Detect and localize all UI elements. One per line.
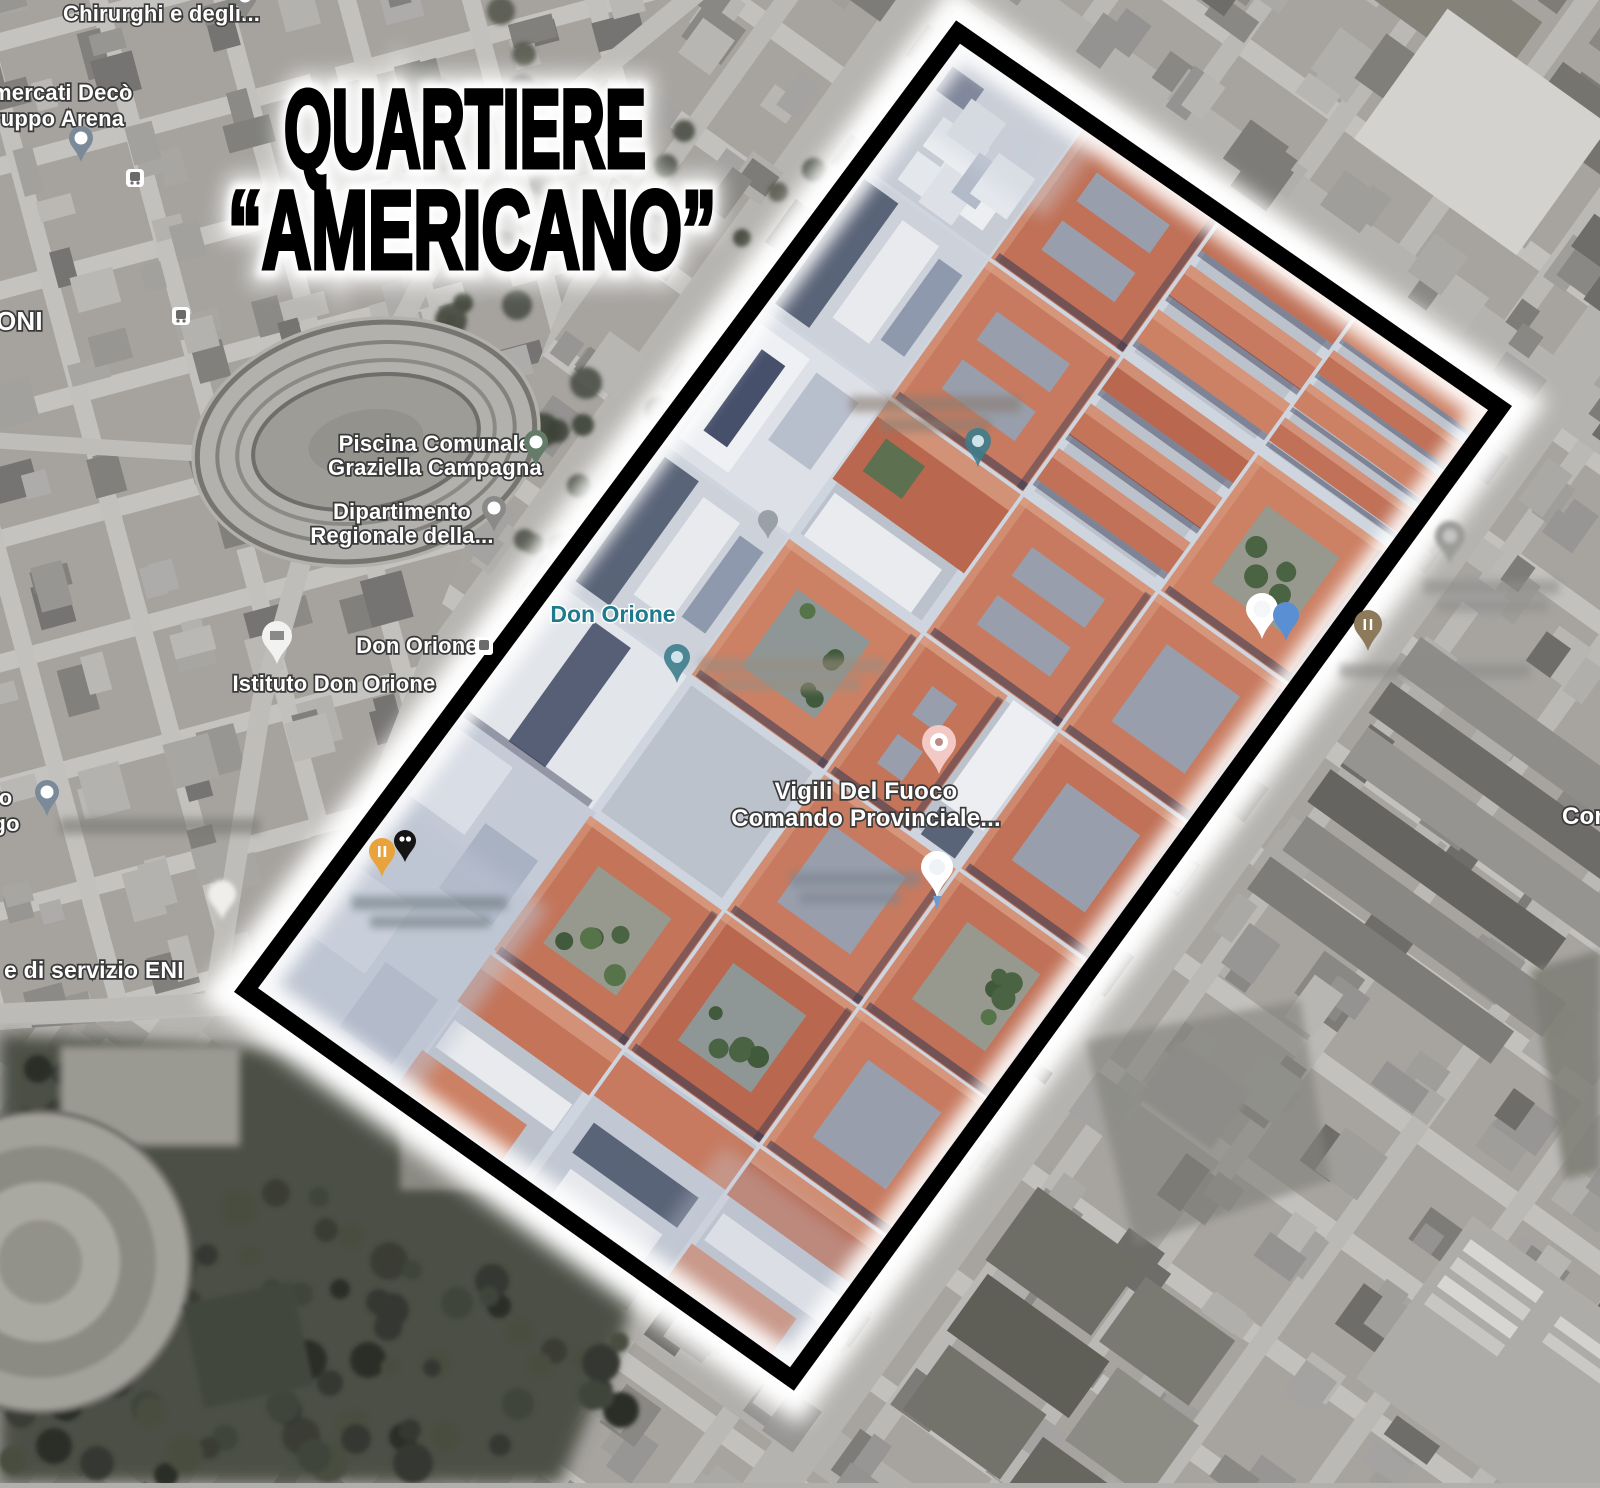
svg-text:ONI: ONI: [0, 306, 43, 336]
svg-text:mercati Decò: mercati Decò: [0, 80, 133, 105]
svg-text:Piscina Comunale: Piscina Comunale: [339, 431, 532, 456]
svg-text:Graziella Campagna: Graziella Campagna: [328, 455, 542, 480]
svg-text:Istituto Don Orione: Istituto Don Orione: [232, 671, 435, 696]
svg-text:Don Orione: Don Orione: [550, 601, 675, 627]
svg-text:Com: Com: [1562, 803, 1600, 830]
svg-text:Vigili Del Fuoco: Vigili Del Fuoco: [775, 778, 958, 805]
svg-text:“AMERICANO”: “AMERICANO”: [228, 169, 716, 292]
svg-text:ruppo Arena: ruppo Arena: [0, 106, 125, 131]
svg-text:e di servizio ENI: e di servizio ENI: [4, 957, 184, 983]
svg-text:Regionale della...: Regionale della...: [310, 523, 493, 548]
svg-text:Comando Provinciale...: Comando Provinciale...: [731, 805, 1001, 832]
svg-text:ago: ago: [0, 811, 20, 836]
svg-text:Chirurghi e degli...: Chirurghi e degli...: [63, 1, 260, 26]
svg-text:Dipartimento: Dipartimento: [333, 499, 471, 524]
svg-text:ivo: ivo: [0, 785, 12, 810]
svg-text:Don Orione: Don Orione: [356, 633, 478, 658]
